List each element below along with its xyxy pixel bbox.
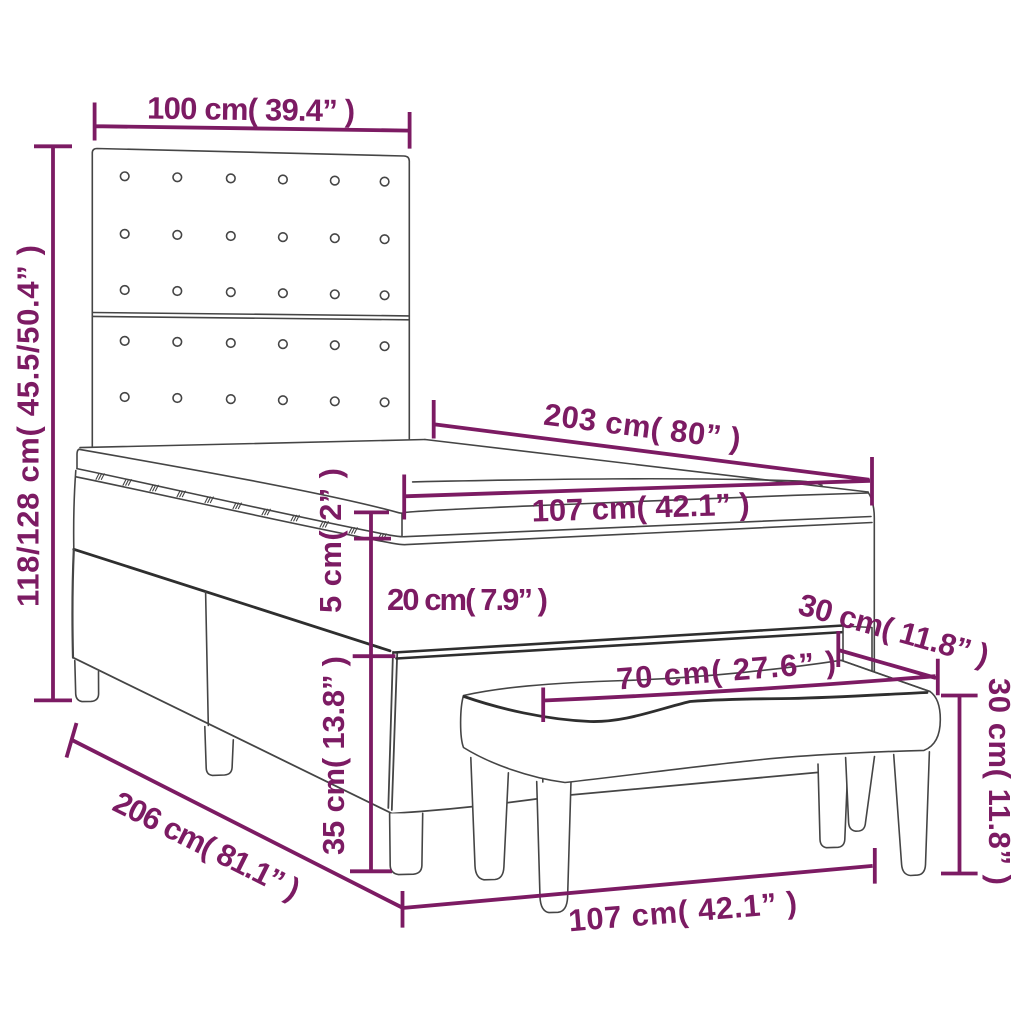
svg-text:107 cm( 42.1” ): 107 cm( 42.1” ): [531, 486, 750, 528]
svg-text:20 cm( 7.9” ): 20 cm( 7.9” ): [387, 582, 548, 617]
svg-text:107 cm( 42.1” ): 107 cm( 42.1” ): [567, 885, 798, 939]
svg-text:203 cm( 80” ): 203 cm( 80” ): [542, 397, 743, 457]
svg-text:118/128 cm( 45.5/50.4” ): 118/128 cm( 45.5/50.4” ): [11, 245, 46, 607]
svg-text:35 cm( 13.8” ): 35 cm( 13.8” ): [316, 656, 351, 855]
svg-text:100 cm( 39.4” ): 100 cm( 39.4” ): [147, 91, 355, 129]
svg-text:30 cm( 11.8” ): 30 cm( 11.8” ): [982, 678, 1017, 885]
svg-text:5 cm( 2” ): 5 cm( 2” ): [313, 468, 348, 613]
